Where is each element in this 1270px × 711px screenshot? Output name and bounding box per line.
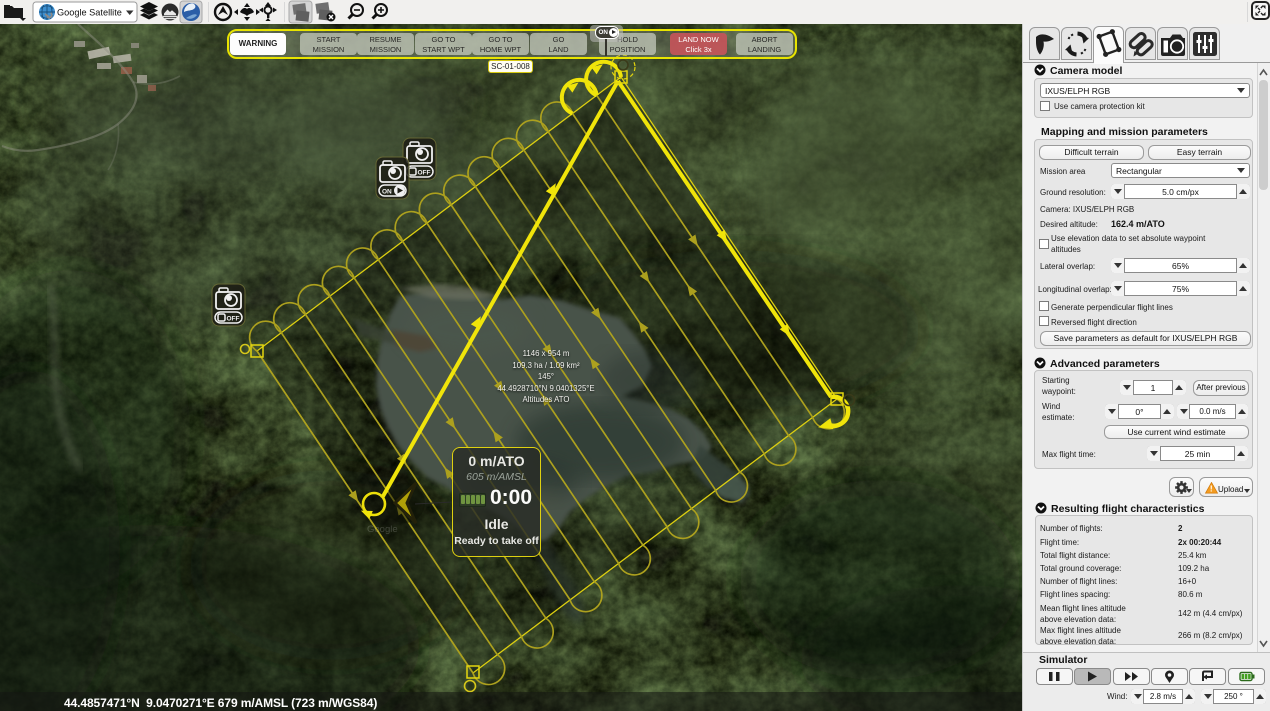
svg-text:OFF: OFF (418, 170, 431, 177)
svg-text:!: ! (1210, 484, 1213, 494)
svg-text:Google: Google (367, 524, 398, 535)
svg-text:ON: ON (382, 189, 392, 196)
svg-text:OFF: OFF (227, 316, 240, 323)
svg-text:Google Satellite: Google Satellite (57, 7, 122, 17)
